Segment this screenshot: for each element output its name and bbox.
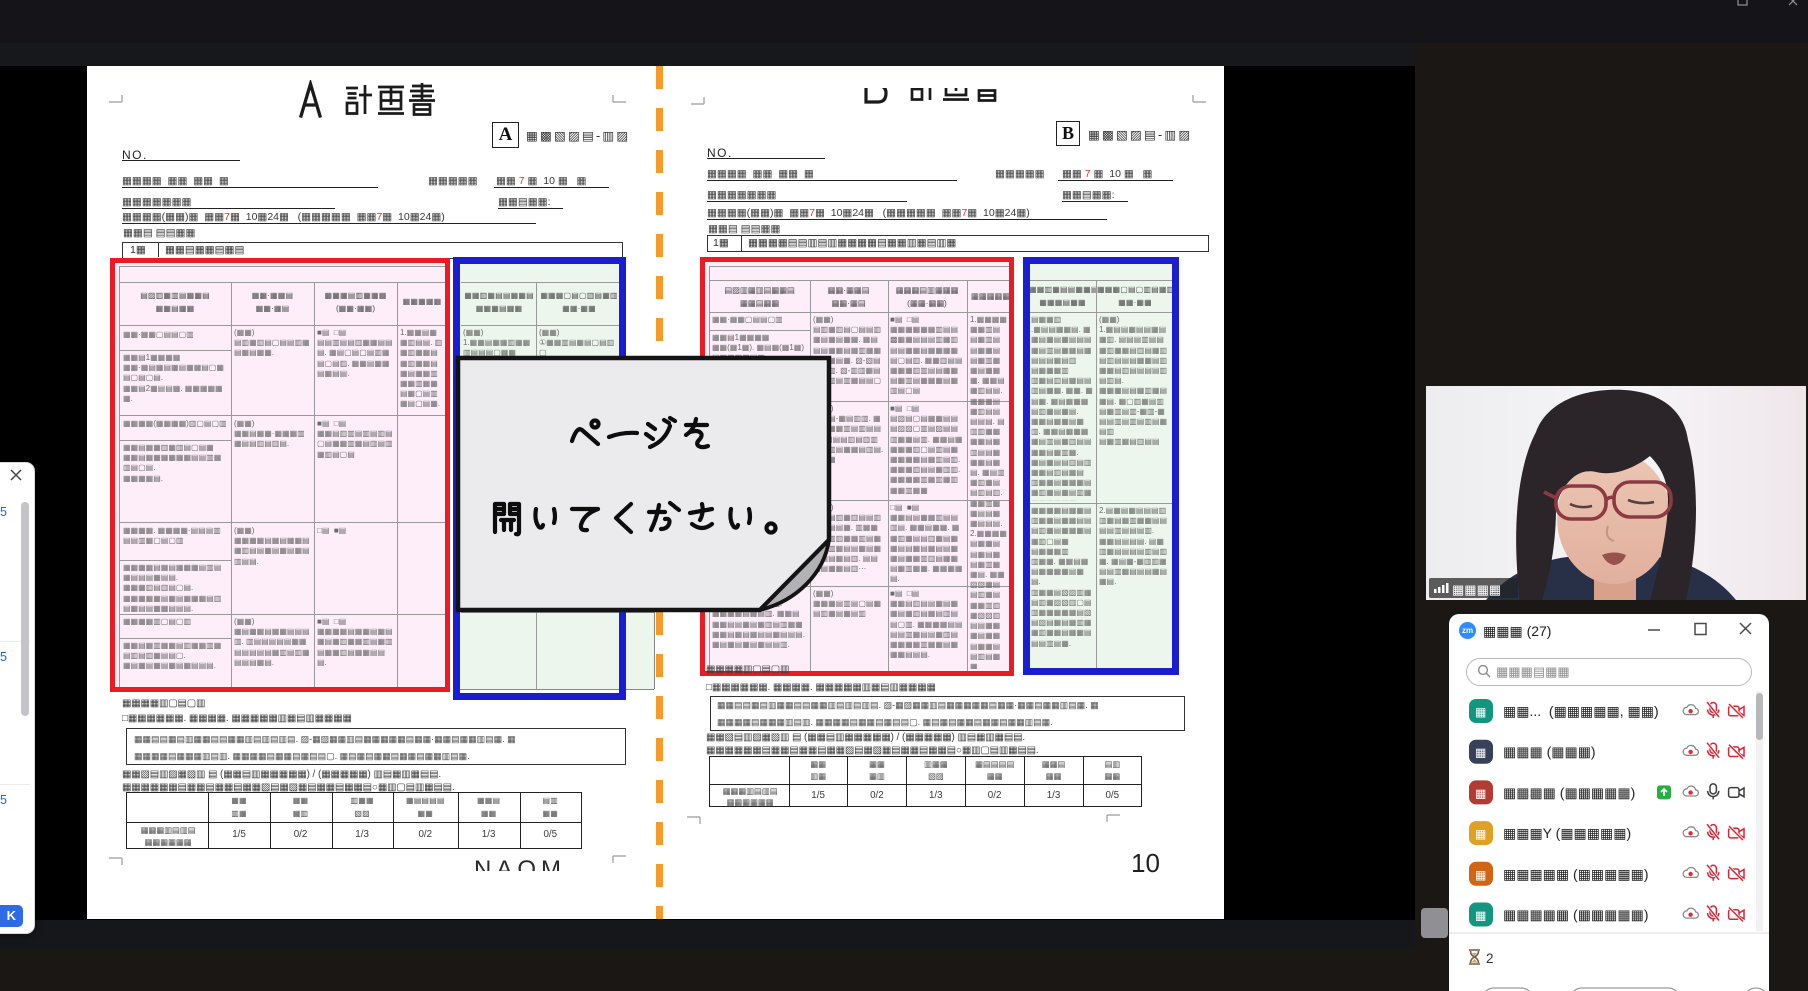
svg-text:▦▦▦▦▦ (▦▦▦▦▦): ▦▦▦▦▦ (▦▦▦▦▦): [1503, 866, 1649, 882]
svg-text:▦: ▦: [1475, 909, 1486, 923]
svg-text:▦▦▦▦▦ (▦▦▦▦▦): ▦▦▦▦▦ (▦▦▦▦▦): [1503, 907, 1649, 923]
svg-text:▦: ▦: [1475, 746, 1486, 760]
svg-text:▦: ▦: [1475, 705, 1486, 719]
svg-text:2: 2: [1486, 951, 1494, 966]
svg-text:▦: ▦: [1475, 868, 1486, 882]
svg-text:▦▦▦Y (▦▦▦▦▦): ▦▦▦Y (▦▦▦▦▦): [1503, 825, 1631, 841]
svg-text:▦▦▦▦ (▦▦▦▦▦): ▦▦▦▦ (▦▦▦▦▦): [1503, 784, 1635, 800]
svg-text:▦: ▦: [1475, 827, 1486, 841]
svg-text:▦▦... (▦▦▦▦▦, ▦▦): ▦▦... (▦▦▦▦▦, ▦▦): [1503, 703, 1659, 719]
svg-text:▦: ▦: [1475, 786, 1486, 800]
svg-text:▦▦▦▦: ▦▦▦▦: [1452, 582, 1501, 597]
svg-text:▦▦▦ (▦▦▦): ▦▦▦ (▦▦▦): [1503, 744, 1596, 760]
